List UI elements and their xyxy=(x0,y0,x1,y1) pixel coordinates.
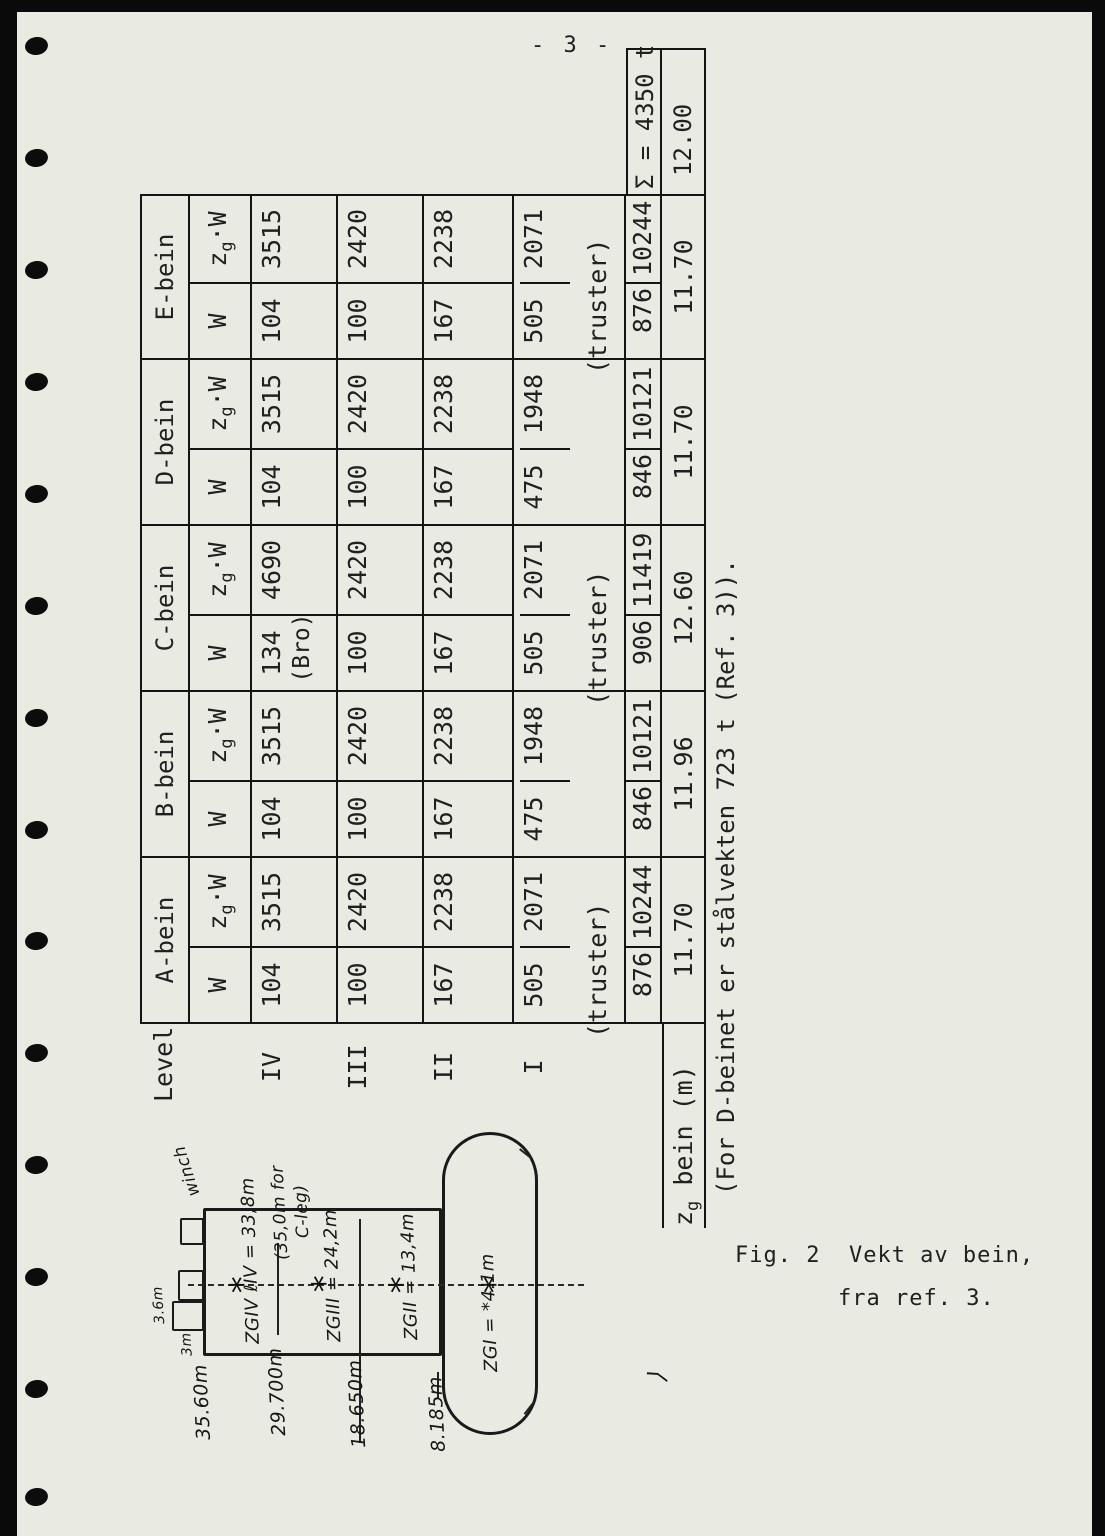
cell-b-i: 4751948 xyxy=(514,692,626,858)
cell-b-iv-zgw: 3515 xyxy=(252,692,338,782)
row-label-iii: III xyxy=(338,1024,424,1110)
scanned-report-page: { "colors": {"paper":"#e9ebe3","ink":"#2… xyxy=(0,0,1105,1536)
binder-hole xyxy=(24,259,49,280)
binder-hole xyxy=(24,1154,49,1175)
dim-3-6m-label: 3.6m xyxy=(150,1286,169,1325)
cell-d-total: 84610121 xyxy=(626,360,662,526)
row-label-ii: II xyxy=(424,1024,514,1110)
col-header-c-bein: C-bein xyxy=(140,526,190,692)
cell-a-iii-w: 100 xyxy=(338,948,424,1024)
cell-c-i: 5052071 (truster) xyxy=(514,526,626,692)
scan-edge-right xyxy=(1092,0,1105,1536)
cell-e-i: 5052071 (truster) xyxy=(514,194,626,360)
binder-hole xyxy=(24,35,49,56)
cell-a-ii-zgw: 2238 xyxy=(424,858,514,948)
row-label-iv: IV xyxy=(252,1024,338,1110)
binder-hole xyxy=(24,595,49,616)
row-label-totals xyxy=(626,1024,662,1110)
subheader-zgw: zg·W xyxy=(190,194,252,284)
cell-b-iii-w: 100 xyxy=(338,782,424,858)
cell-b-zg: 11.96 xyxy=(662,692,706,858)
cell-e-iii-w: 100 xyxy=(338,284,424,360)
deckhouse-tall-box xyxy=(172,1301,204,1331)
row-label-zg-bein: zg bein (m) xyxy=(662,1024,706,1110)
cell-a-total: 87610244 xyxy=(626,858,662,1024)
cell-d-iii-zgw: 2420 xyxy=(338,360,424,450)
col-header-a-bein: A-bein xyxy=(140,858,190,1024)
cell-b-total: 84610121 xyxy=(626,692,662,858)
cell-a-i: 5052071 (truster) xyxy=(514,858,626,1024)
subheader-zgw: zg·W xyxy=(190,526,252,616)
cell-c-total: 90611419 xyxy=(626,526,662,692)
stray-pen-mark: ⟩ xyxy=(642,1368,671,1383)
winch-box xyxy=(180,1218,204,1245)
binder-hole xyxy=(24,930,49,951)
elevation-8-185: 8.185m xyxy=(424,1376,450,1453)
binder-hole xyxy=(24,371,49,392)
binder-hole xyxy=(24,707,49,728)
zg-iv-cleg-annotation-2: C-leg) xyxy=(291,1184,314,1239)
subheader-w: W xyxy=(190,616,252,692)
zg-iv-annotation: ZGIV ℓIV = 33,8m xyxy=(237,1177,264,1344)
cell-a-iv-zgw: 3515 xyxy=(252,858,338,948)
cell-a-iii-zgw: 2420 xyxy=(338,858,424,948)
cell-e-total: 87610244 xyxy=(626,194,662,360)
cell-c-iv-w: 134(Bro) xyxy=(252,616,338,692)
zg-i-annotation: ZGI = *4.1m xyxy=(477,1253,502,1372)
overall-zg-cell: 12.00 xyxy=(662,50,697,194)
binder-hole xyxy=(24,819,49,840)
cell-a-zg: 11.70 xyxy=(662,858,706,1024)
cell-d-ii-zgw: 2238 xyxy=(424,360,514,450)
binder-hole xyxy=(24,1266,49,1287)
rotated-content: Level A-bein B-bein C-bein D-bein E-bein… xyxy=(85,45,760,1490)
subheader-zgw: zg·W xyxy=(190,692,252,782)
table-corner-label: Level xyxy=(140,1024,252,1110)
subheader-w: W xyxy=(190,284,252,360)
cell-b-iii-zgw: 2420 xyxy=(338,692,424,782)
col-header-e-bein: E-bein xyxy=(140,194,190,360)
cell-d-ii-w: 167 xyxy=(424,450,514,526)
cell-b-ii-zgw: 2238 xyxy=(424,692,514,782)
cell-e-iii-zgw: 2420 xyxy=(338,194,424,284)
zg-ii-annotation: ZGII = 13,4m xyxy=(397,1213,422,1341)
cell-c-ii-zgw: 2238 xyxy=(424,526,514,616)
binder-hole xyxy=(24,1378,49,1399)
col-header-d-bein: D-bein xyxy=(140,360,190,526)
cell-d-zg: 11.70 xyxy=(662,360,706,526)
cell-c-iii-w: 100 xyxy=(338,616,424,692)
elevation-35-60: 35.60m xyxy=(189,1364,215,1441)
weight-table: Level A-bein B-bein C-bein D-bein E-bein… xyxy=(140,194,706,1110)
binder-hole xyxy=(24,147,49,168)
elevation-29-700: 29.700m xyxy=(264,1347,291,1437)
cell-c-zg: 12.60 xyxy=(662,526,706,692)
cell-c-iv-zgw: 4690 xyxy=(252,526,338,616)
elevation-18-650: 18.650m xyxy=(344,1359,371,1449)
cell-e-ii-zgw: 2238 xyxy=(424,194,514,284)
cell-e-zg: 11.70 xyxy=(662,194,706,360)
cell-d-iv-w: 104 xyxy=(252,450,338,526)
dim-3m-label: 3m xyxy=(178,1332,196,1357)
scan-edge-left xyxy=(0,0,17,1536)
col-header-b-bein: B-bein xyxy=(140,692,190,858)
cell-c-iii-zgw: 2420 xyxy=(338,526,424,616)
cell-e-ii-w: 167 xyxy=(424,284,514,360)
scan-edge-top xyxy=(0,0,1105,12)
subheader-w: W xyxy=(190,948,252,1024)
cell-c-ii-w: 167 xyxy=(424,616,514,692)
binder-hole xyxy=(24,483,49,504)
cell-e-iv-w: 104 xyxy=(252,284,338,360)
subheader-zgw: zg·W xyxy=(190,360,252,450)
cell-d-i: 4751948 xyxy=(514,360,626,526)
sum-cell: Σ = 4350 t xyxy=(628,50,662,194)
figure-caption-line2: fra ref. 3. xyxy=(838,1286,995,1312)
cell-b-iv-w: 104 xyxy=(252,782,338,858)
cell-d-iv-zgw: 3515 xyxy=(252,360,338,450)
subheader-w: W xyxy=(190,450,252,526)
subheader-w: W xyxy=(190,782,252,858)
cell-e-iv-zgw: 3515 xyxy=(252,194,338,284)
winch-label: winch xyxy=(169,1143,204,1199)
figure-caption-line1: Fig. 2 Vekt av bein, xyxy=(735,1243,1034,1269)
binder-hole xyxy=(24,1042,49,1063)
cell-a-ii-w: 167 xyxy=(424,948,514,1024)
table-sum-extension: Σ = 4350 t 12.00 xyxy=(626,48,706,196)
zg-iv-cleg-annotation-1: (35,0m for xyxy=(268,1165,293,1261)
cell-a-iv-w: 104 xyxy=(252,948,338,1024)
subheader-zgw: zg·W xyxy=(190,858,252,948)
cell-d-iii-w: 100 xyxy=(338,450,424,526)
binder-hole xyxy=(24,1486,49,1507)
table-note: (For D-beinet er stålvekten 723 t (Ref. … xyxy=(712,559,741,1195)
cell-b-ii-w: 167 xyxy=(424,782,514,858)
